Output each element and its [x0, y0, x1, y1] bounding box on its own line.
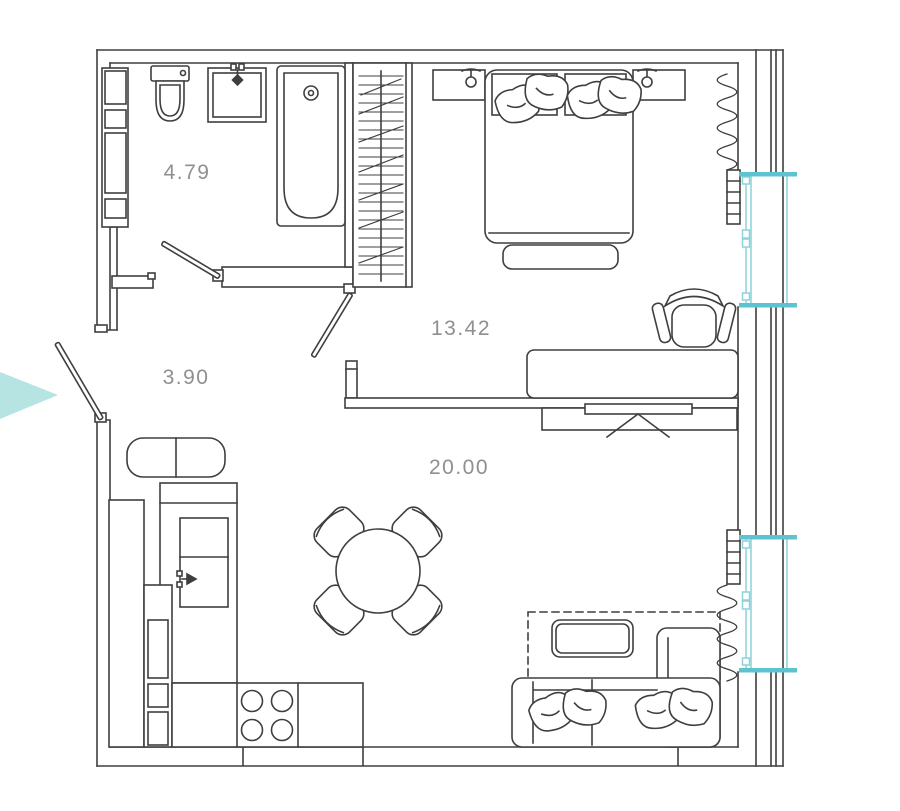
bathroom-side-wall [345, 63, 353, 267]
partition-stub [346, 361, 357, 398]
burner [242, 691, 263, 712]
bathtub-icon [277, 66, 345, 226]
bed-bench [503, 245, 618, 269]
curtain-bottom-icon [717, 585, 737, 681]
bottom-counter [172, 683, 363, 747]
desk [527, 350, 738, 398]
room-area-label-living-kitchen: 20.00 [429, 456, 489, 480]
bedroom-door [311, 293, 353, 358]
burner [272, 720, 293, 741]
tv-zone [542, 404, 737, 437]
plan-linework [55, 50, 783, 766]
sofa-ottoman [552, 620, 633, 657]
kitchen-sink-icon [177, 518, 228, 607]
window-bottom-icon [743, 539, 788, 668]
living-room [310, 503, 740, 747]
wardrobe [353, 63, 412, 287]
bathroom [102, 64, 345, 288]
washbasin-icon [208, 64, 266, 122]
kitchen-bench [127, 438, 225, 477]
nightstand-left [433, 70, 485, 100]
radiator-top-icon [727, 170, 740, 224]
windows [743, 176, 788, 668]
floor-plan: 4.79 3.90 13.42 20.00 [0, 0, 900, 811]
bathroom-door [161, 241, 220, 279]
curtain-top-icon [717, 74, 737, 170]
burner [272, 691, 293, 712]
room-area-label-bedroom: 13.42 [431, 317, 491, 341]
room-area-label-bathroom: 4.79 [164, 161, 211, 185]
entrance-arrow-icon [0, 372, 58, 419]
bedroom [433, 69, 740, 398]
cabinet-column [144, 585, 172, 747]
window-top-icon [743, 176, 788, 303]
floor-plan-svg [0, 0, 900, 811]
entrance-door [55, 342, 103, 420]
office-chair-icon [651, 289, 736, 347]
tv-icon [585, 404, 692, 414]
toilet-icon [151, 66, 189, 121]
room-area-label-hallway: 3.90 [163, 366, 210, 390]
bathroom-wall [222, 267, 353, 287]
fridge-column [109, 500, 144, 747]
radiator-bottom-icon [727, 530, 740, 584]
dining-table-icon [336, 529, 420, 613]
burner [242, 720, 263, 741]
hall-shelf [112, 276, 153, 288]
